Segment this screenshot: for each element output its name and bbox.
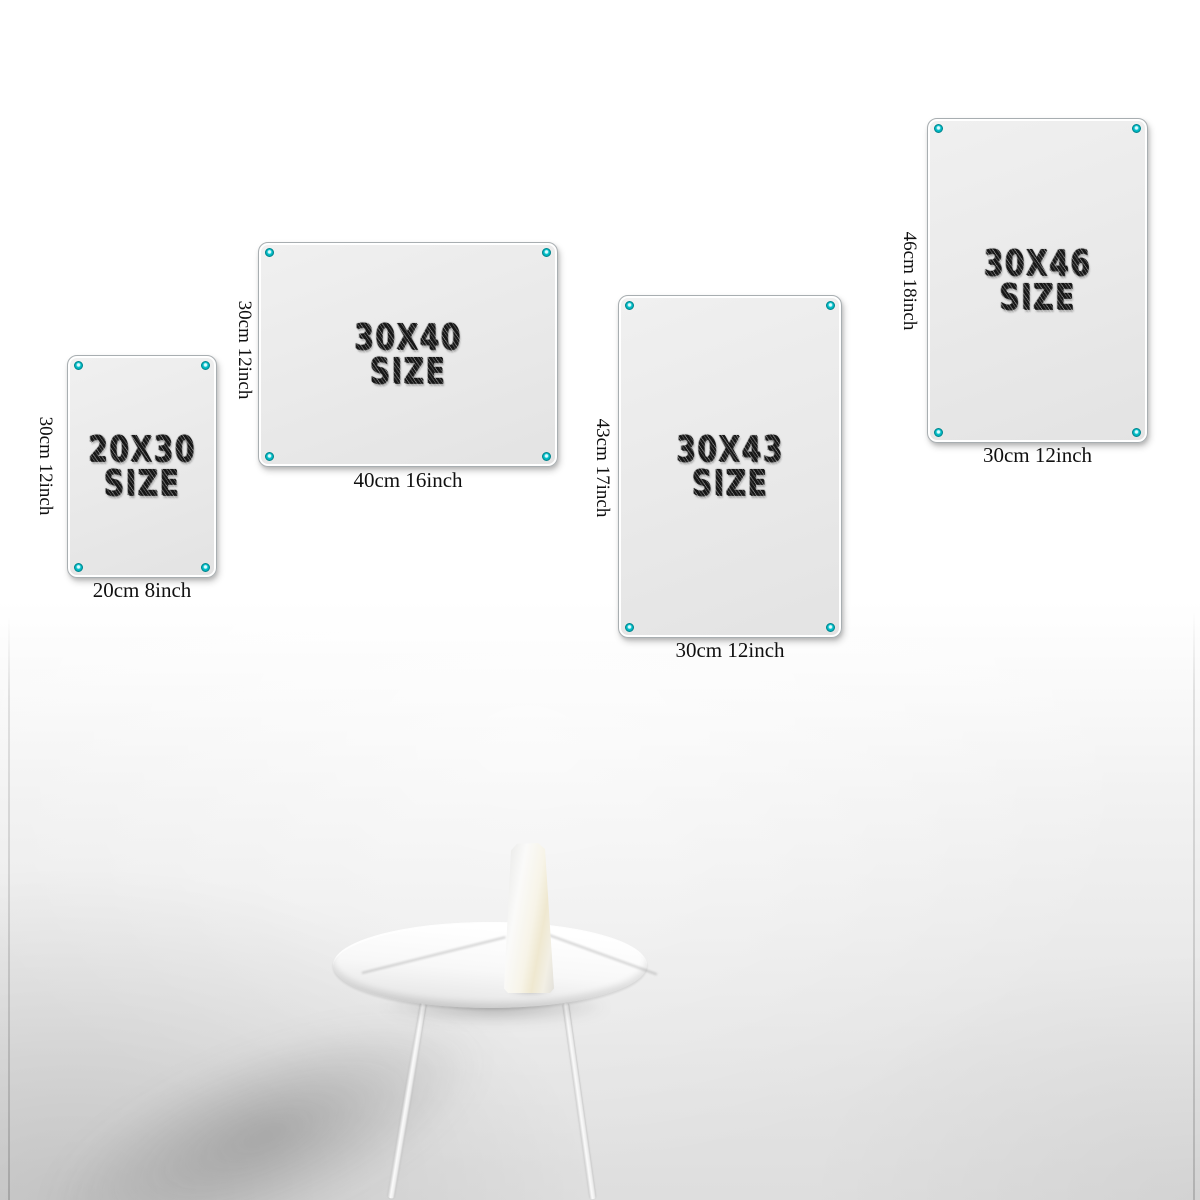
- sign-panel-30x40: 30X40 SIZE: [258, 242, 558, 467]
- width-dimension-label: 40cm 16inch: [258, 468, 558, 493]
- size-text-line1: 20X30: [88, 433, 196, 467]
- side-table-top: [333, 922, 647, 1008]
- mounting-hole-icon: [934, 124, 943, 133]
- product-size-chart: 20X30 SIZE 30cm 12inch 20cm 8inch 30X40 …: [0, 0, 1200, 1200]
- height-dimension-label: 43cm 17inch: [591, 419, 613, 518]
- mounting-hole-icon: [201, 361, 210, 370]
- mounting-hole-icon: [74, 361, 83, 370]
- sign-panel-20x30: 20X30 SIZE: [67, 355, 217, 578]
- mounting-hole-icon: [625, 623, 634, 632]
- sign-size-text: 30X43 SIZE: [643, 296, 816, 637]
- size-text-line1: 30X46: [984, 247, 1092, 281]
- mounting-hole-icon: [265, 248, 274, 257]
- mounting-hole-icon: [1132, 124, 1141, 133]
- mounting-hole-icon: [1132, 428, 1141, 437]
- sign-size-text: 30X46 SIZE: [952, 119, 1123, 442]
- sign-panel-30x43: 30X43 SIZE: [618, 295, 842, 638]
- size-text-line2: SIZE: [999, 281, 1075, 315]
- height-dimension-label: 46cm 18inch: [898, 232, 920, 331]
- sign-panel-30x46: 30X46 SIZE: [927, 118, 1148, 443]
- width-dimension-label: 20cm 8inch: [67, 578, 217, 603]
- mounting-hole-icon: [826, 301, 835, 310]
- width-dimension-label: 30cm 12inch: [927, 443, 1148, 468]
- mounting-hole-icon: [74, 563, 83, 572]
- width-dimension-label: 30cm 12inch: [618, 638, 842, 663]
- size-text-line2: SIZE: [370, 355, 446, 389]
- sign-size-text: 30X40 SIZE: [292, 243, 524, 466]
- size-text-line2: SIZE: [692, 467, 768, 501]
- size-text-line1: 30X43: [676, 433, 784, 467]
- mounting-hole-icon: [826, 623, 835, 632]
- mounting-hole-icon: [542, 248, 551, 257]
- mounting-hole-icon: [542, 452, 551, 461]
- mounting-hole-icon: [625, 301, 634, 310]
- height-dimension-label: 30cm 12inch: [233, 301, 255, 400]
- mounting-hole-icon: [265, 452, 274, 461]
- mounting-hole-icon: [201, 563, 210, 572]
- height-dimension-label: 30cm 12inch: [34, 417, 56, 516]
- size-text-line2: SIZE: [104, 467, 180, 501]
- wall-corner-right: [1193, 610, 1195, 1200]
- size-text-line1: 30X40: [354, 321, 462, 355]
- mounting-hole-icon: [934, 428, 943, 437]
- sign-size-text: 20X30 SIZE: [84, 356, 199, 577]
